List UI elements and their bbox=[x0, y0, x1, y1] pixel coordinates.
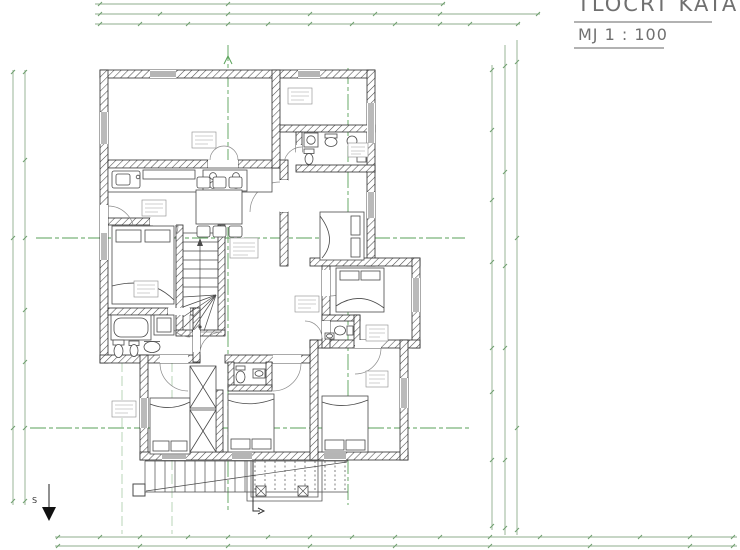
wardrobe bbox=[190, 366, 216, 452]
room-label bbox=[112, 401, 136, 417]
porch-column bbox=[298, 486, 308, 496]
room-label bbox=[288, 88, 312, 104]
bed bbox=[336, 268, 384, 312]
bed bbox=[322, 396, 368, 452]
exterior-staircase bbox=[133, 461, 348, 496]
bed bbox=[320, 212, 364, 260]
room-label bbox=[142, 200, 166, 216]
wc-lower-fixtures bbox=[236, 366, 265, 383]
bed bbox=[228, 394, 274, 452]
room-label bbox=[192, 132, 216, 148]
bathroom-main-fixtures bbox=[111, 315, 174, 358]
room-label bbox=[348, 143, 368, 157]
kitchen-counter bbox=[108, 168, 272, 192]
room-label bbox=[366, 371, 388, 387]
porch-column bbox=[256, 486, 266, 496]
drawing-sheet: TLOCRT KATA MJ 1 : 100 S bbox=[0, 0, 740, 550]
room-label bbox=[295, 296, 319, 312]
drawing-scale: MJ 1 : 100 bbox=[578, 25, 668, 44]
room-label bbox=[366, 325, 388, 341]
title-block: TLOCRT KATA MJ 1 : 100 bbox=[574, 0, 738, 48]
porch bbox=[247, 461, 322, 514]
room-label bbox=[230, 238, 258, 258]
north-label: S bbox=[32, 496, 37, 505]
dining-set bbox=[196, 177, 242, 237]
interior-staircase bbox=[183, 233, 218, 331]
bed bbox=[150, 398, 190, 454]
room-label bbox=[134, 281, 158, 297]
north-arrow-icon: S bbox=[32, 484, 56, 521]
floor-plan-canvas: TLOCRT KATA MJ 1 : 100 S bbox=[0, 0, 740, 550]
drawing-title: TLOCRT KATA bbox=[576, 0, 738, 16]
